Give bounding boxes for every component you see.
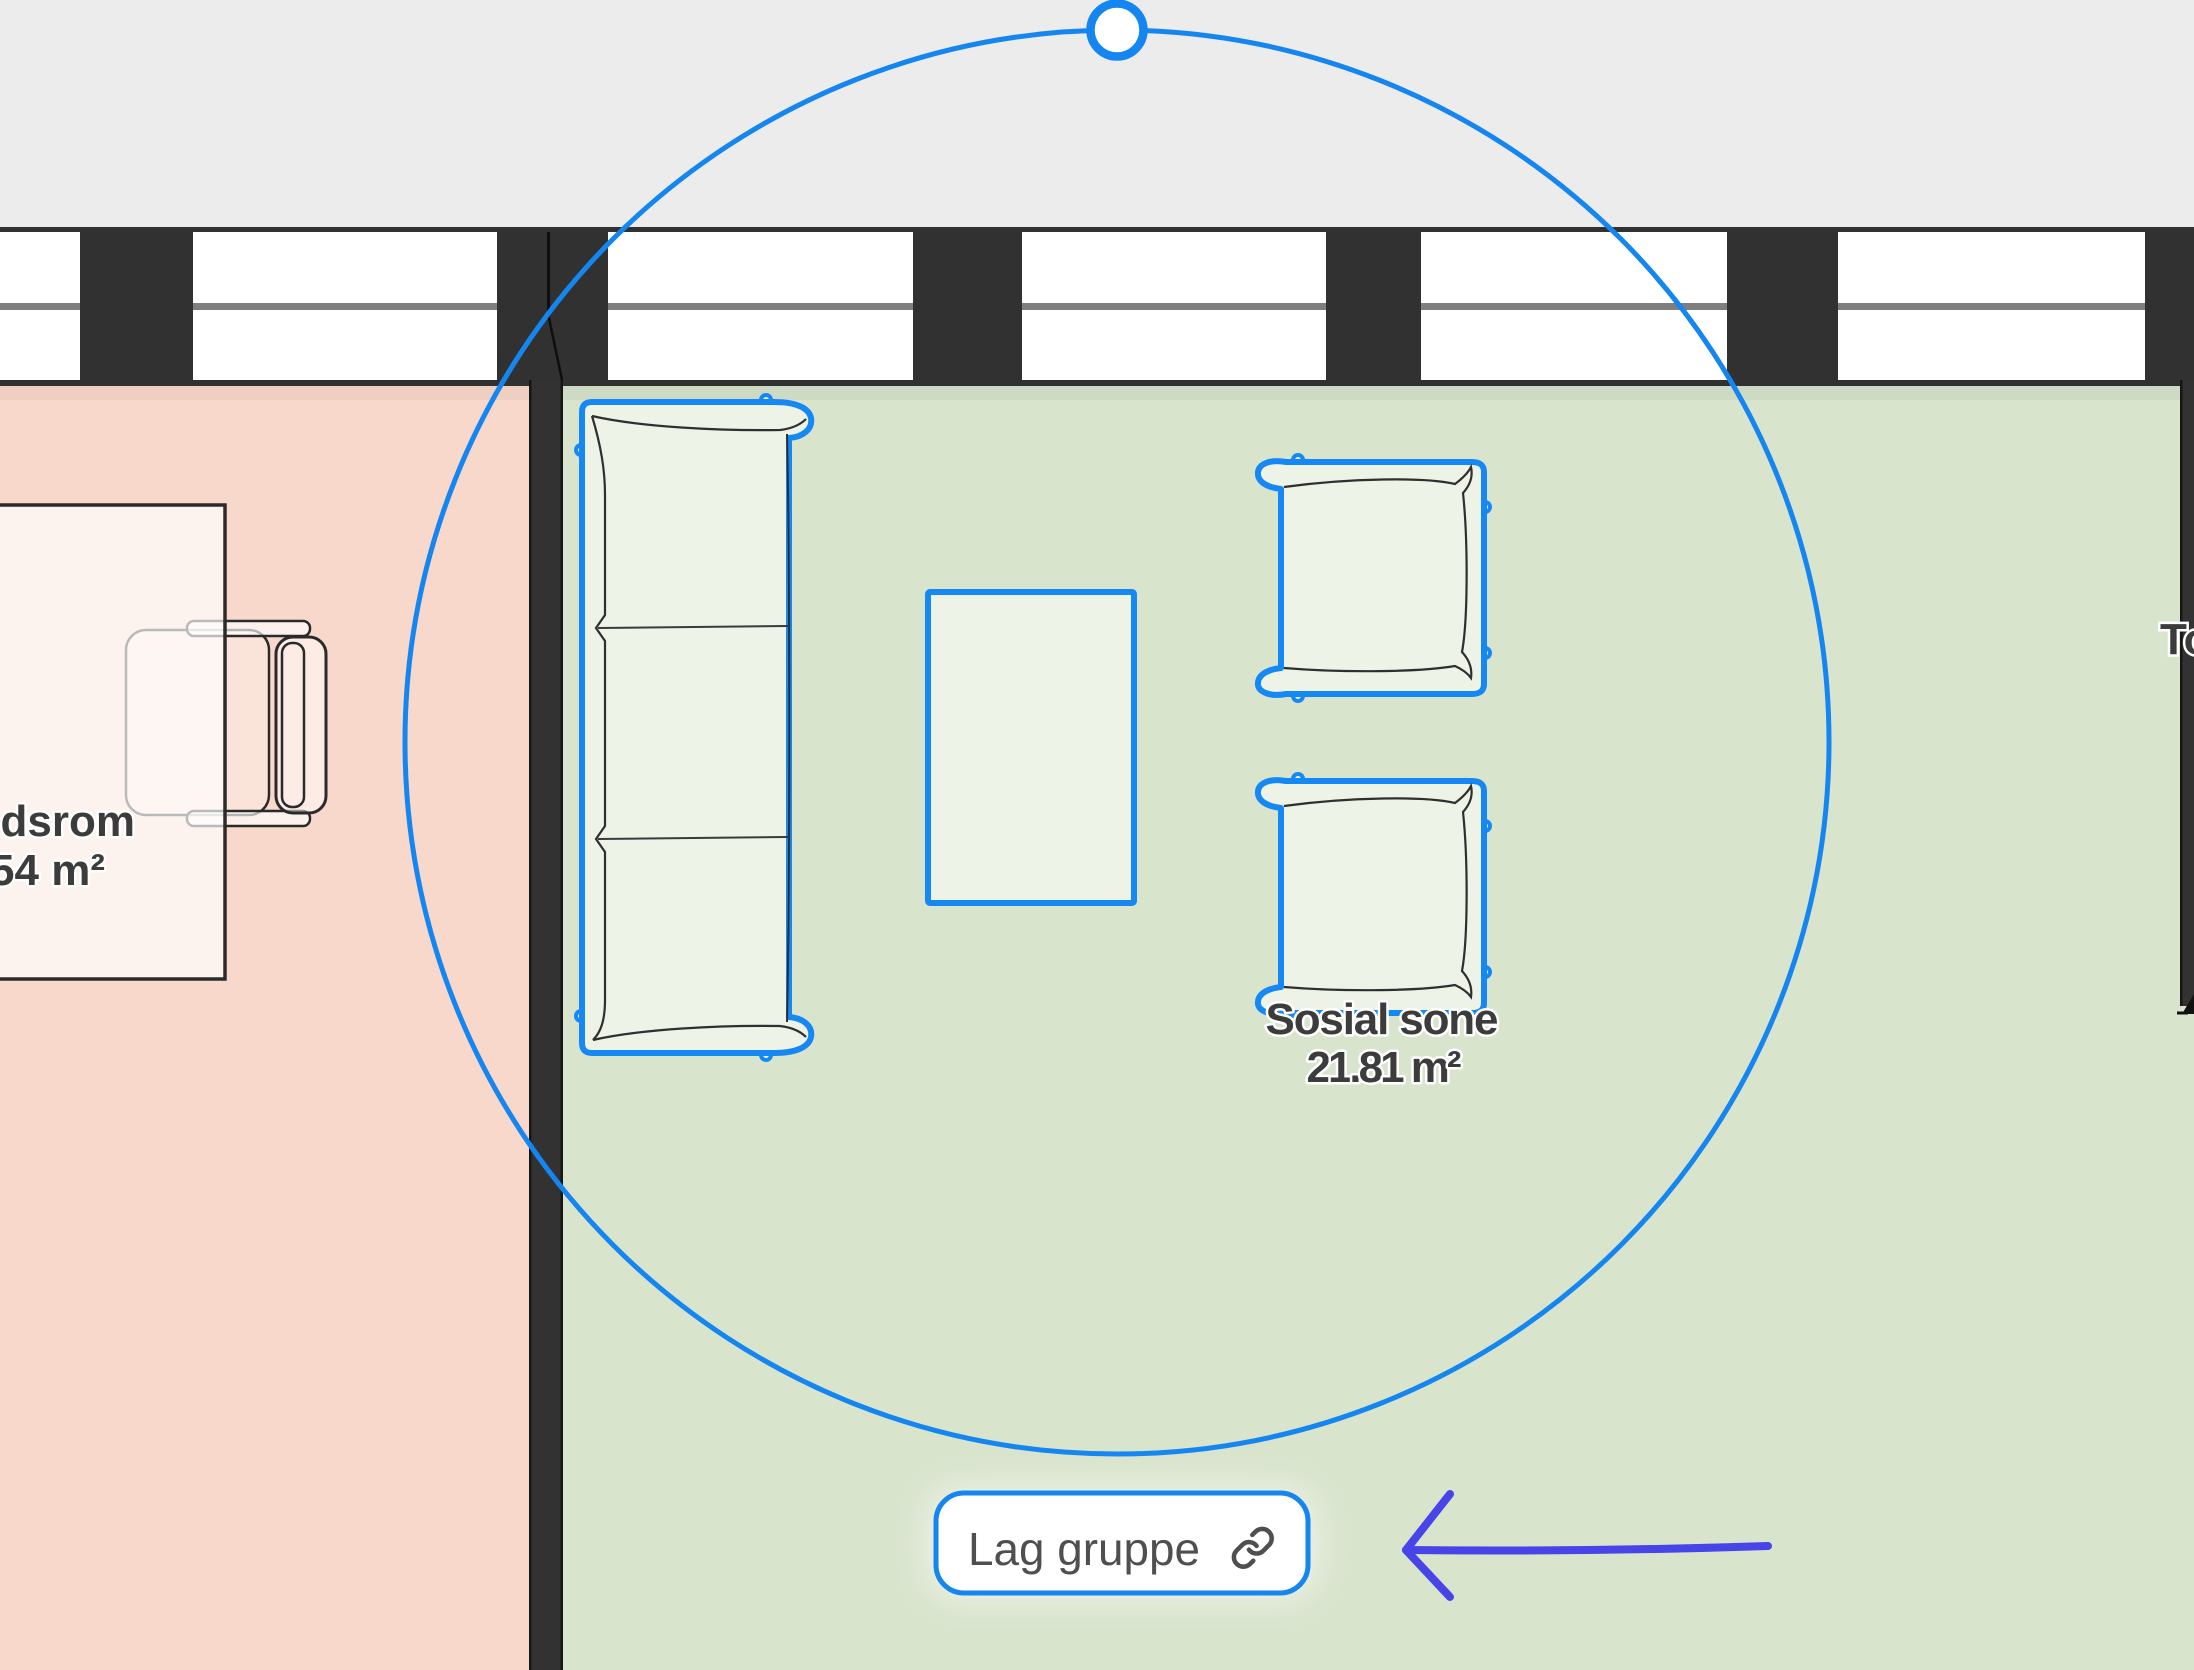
svg-text:21.81 m²: 21.81 m² [1307, 1043, 1462, 1092]
svg-text:Sosial sone: Sosial sone [1266, 995, 1499, 1044]
svg-text:Arbeidsrom: Arbeidsrom [0, 797, 135, 846]
svg-text:Lag gruppe: Lag gruppe [968, 1523, 1200, 1575]
svg-text:13.54 m²: 13.54 m² [0, 846, 105, 895]
svg-text:Toalett: Toalett [2160, 615, 2194, 664]
